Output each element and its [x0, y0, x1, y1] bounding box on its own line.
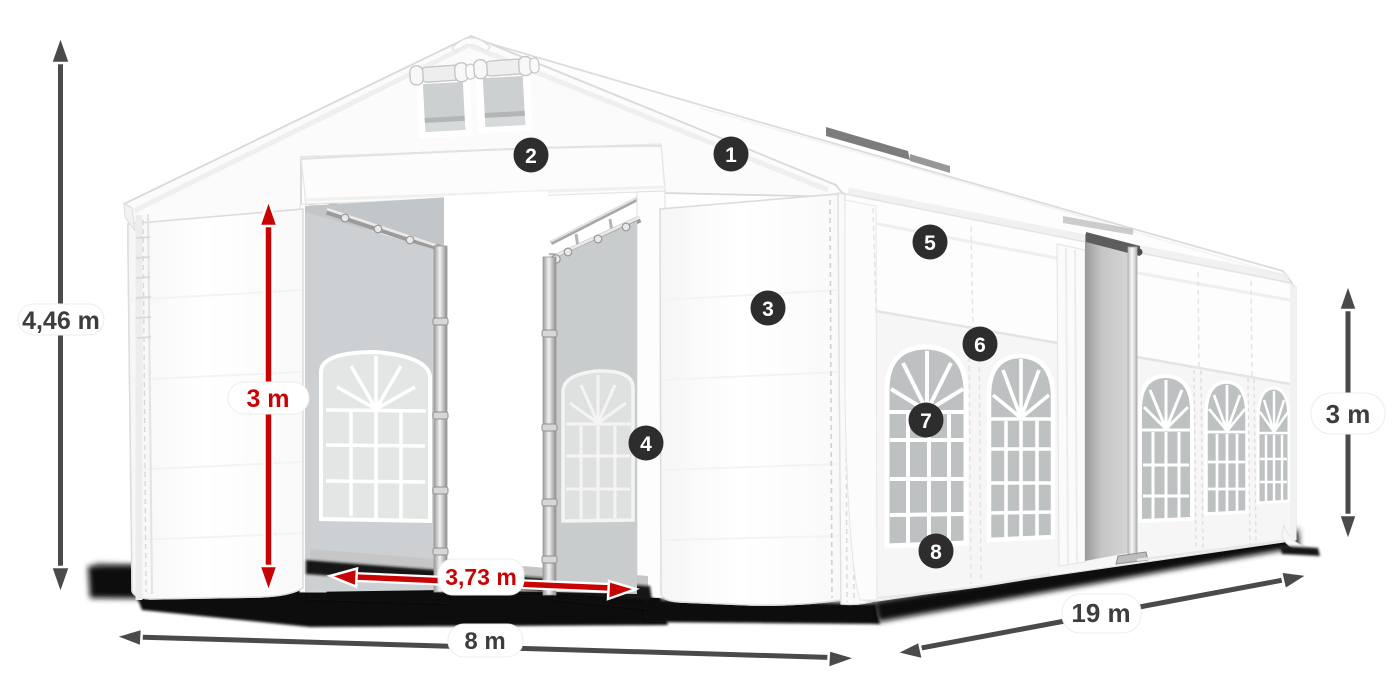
svg-text:3 m: 3 m: [1326, 399, 1371, 429]
svg-text:5: 5: [924, 232, 936, 255]
svg-text:4,46 m: 4,46 m: [22, 307, 100, 335]
svg-text:8 m: 8 m: [464, 628, 505, 655]
svg-text:8: 8: [930, 541, 942, 564]
svg-text:3,73 m: 3,73 m: [445, 564, 517, 590]
svg-text:19 m: 19 m: [1071, 598, 1130, 628]
svg-text:4: 4: [640, 433, 652, 456]
svg-text:3: 3: [762, 298, 774, 321]
svg-text:1: 1: [725, 144, 737, 167]
svg-text:3 m: 3 m: [246, 385, 289, 413]
svg-text:6: 6: [974, 334, 986, 357]
svg-text:2: 2: [525, 145, 537, 168]
svg-text:7: 7: [920, 410, 932, 433]
